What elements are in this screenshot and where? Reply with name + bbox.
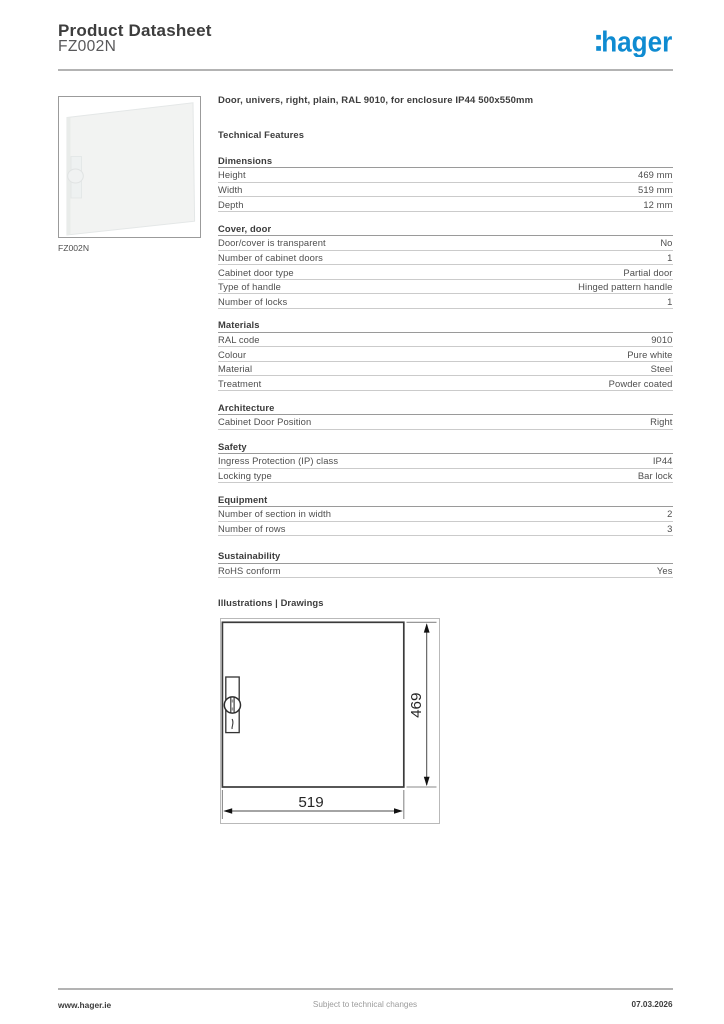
- svg-text:519: 519: [298, 794, 323, 811]
- svg-text:469: 469: [408, 693, 425, 718]
- svg-text:hager: hager: [601, 26, 672, 57]
